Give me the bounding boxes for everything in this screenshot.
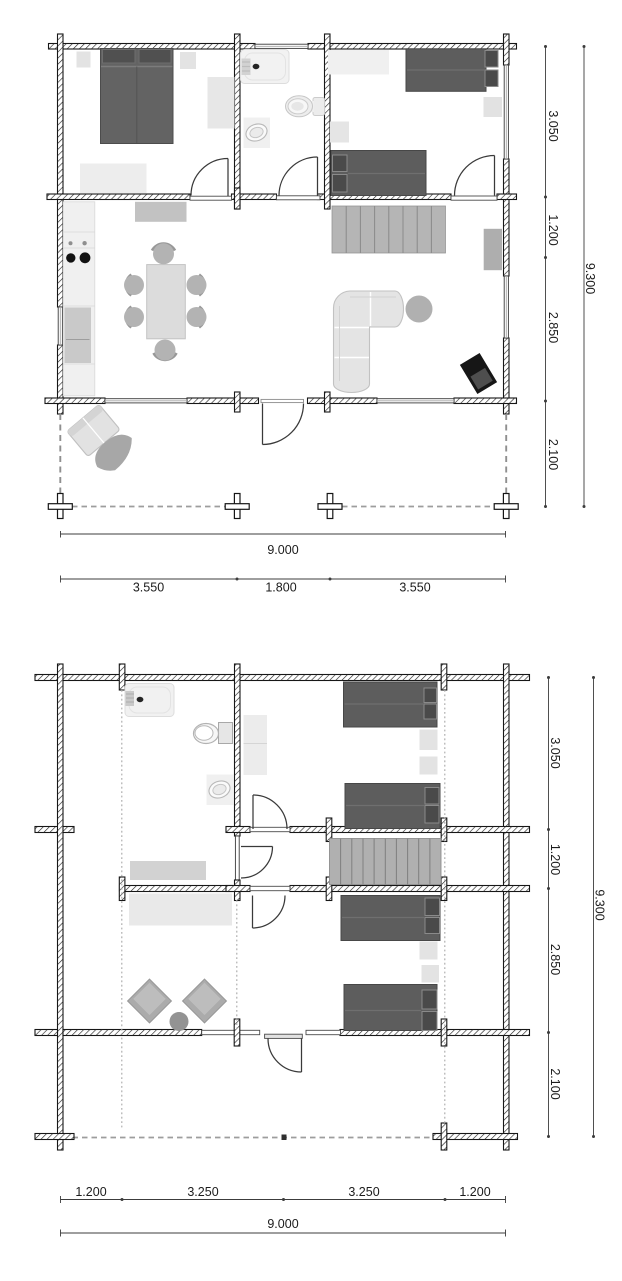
svg-text:3.050: 3.050 [546, 110, 560, 141]
svg-text:1.200: 1.200 [546, 214, 560, 245]
svg-text:1.200: 1.200 [548, 844, 562, 875]
svg-text:3.250: 3.250 [348, 1185, 379, 1199]
svg-text:3.250: 3.250 [187, 1185, 218, 1199]
svg-text:9.000: 9.000 [267, 1217, 298, 1231]
svg-text:9.300: 9.300 [593, 889, 607, 920]
svg-text:2.850: 2.850 [546, 312, 560, 343]
svg-text:2.100: 2.100 [546, 439, 560, 470]
svg-text:1.200: 1.200 [459, 1185, 490, 1199]
svg-text:2.100: 2.100 [548, 1068, 562, 1099]
svg-text:1.200: 1.200 [75, 1185, 106, 1199]
svg-text:9.300: 9.300 [583, 263, 597, 294]
svg-text:3.550: 3.550 [133, 581, 164, 595]
svg-text:2.850: 2.850 [548, 944, 562, 975]
svg-text:3.050: 3.050 [548, 737, 562, 768]
svg-text:1.800: 1.800 [265, 581, 296, 595]
svg-text:3.550: 3.550 [399, 581, 430, 595]
svg-text:9.000: 9.000 [267, 543, 298, 557]
